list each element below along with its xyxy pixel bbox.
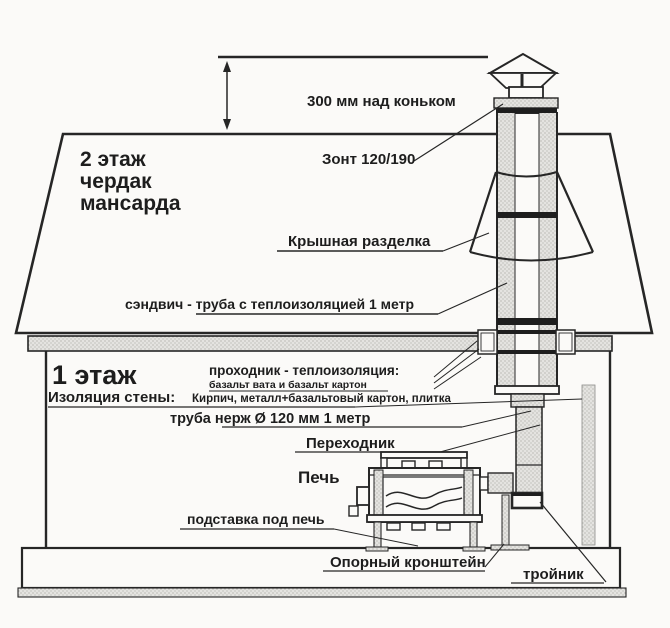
label-support-bracket: Опорный кронштейн — [330, 554, 486, 571]
label-wall-insulation-title: Изоляция стены: — [48, 389, 175, 406]
diagram-svg: 300 мм над коньком Зонт 120/190 2 этаж ч… — [0, 0, 670, 628]
label-attic-line1: 2 этаж — [80, 148, 147, 171]
rain-cap-drawing — [490, 54, 558, 113]
label-rain-cap: Зонт 120/190 — [322, 151, 415, 168]
label-pass-through-note: базальт вата и базальт картон — [209, 379, 367, 391]
label-roof-flashing: Крышная разделка — [288, 233, 431, 250]
label-steel-pipe: труба нерж Ø 120 мм 1 метр — [170, 411, 370, 427]
label-wall-insulation-note: Кирпич, металл+базальтовый картон, плитк… — [192, 393, 452, 405]
label-adapter: Переходник — [306, 435, 395, 452]
label-first-floor: 1 этаж — [52, 360, 137, 390]
label-300mm-above-ridge: 300 мм над коньком — [307, 93, 456, 110]
label-stove-stand: подставка под печь — [187, 511, 325, 527]
label-attic-line3: мансарда — [80, 192, 181, 215]
steel-pipe-drawing — [516, 407, 542, 493]
wall-insulation-strip — [582, 385, 595, 545]
chimney-installation-diagram: 300 мм над коньком Зонт 120/190 2 этаж ч… — [0, 0, 670, 628]
label-tee: тройник — [523, 566, 584, 583]
tee-drawing — [512, 493, 542, 508]
label-sandwich-pipe: сэндвич - труба с теплоизоляцией 1 метр — [125, 296, 414, 312]
label-attic-line2: чердак — [80, 170, 152, 193]
stove-drawing — [349, 452, 513, 551]
label-pass-through-title: проходник - теплоизоляция: — [209, 363, 399, 378]
label-stove: Печь — [298, 468, 340, 487]
